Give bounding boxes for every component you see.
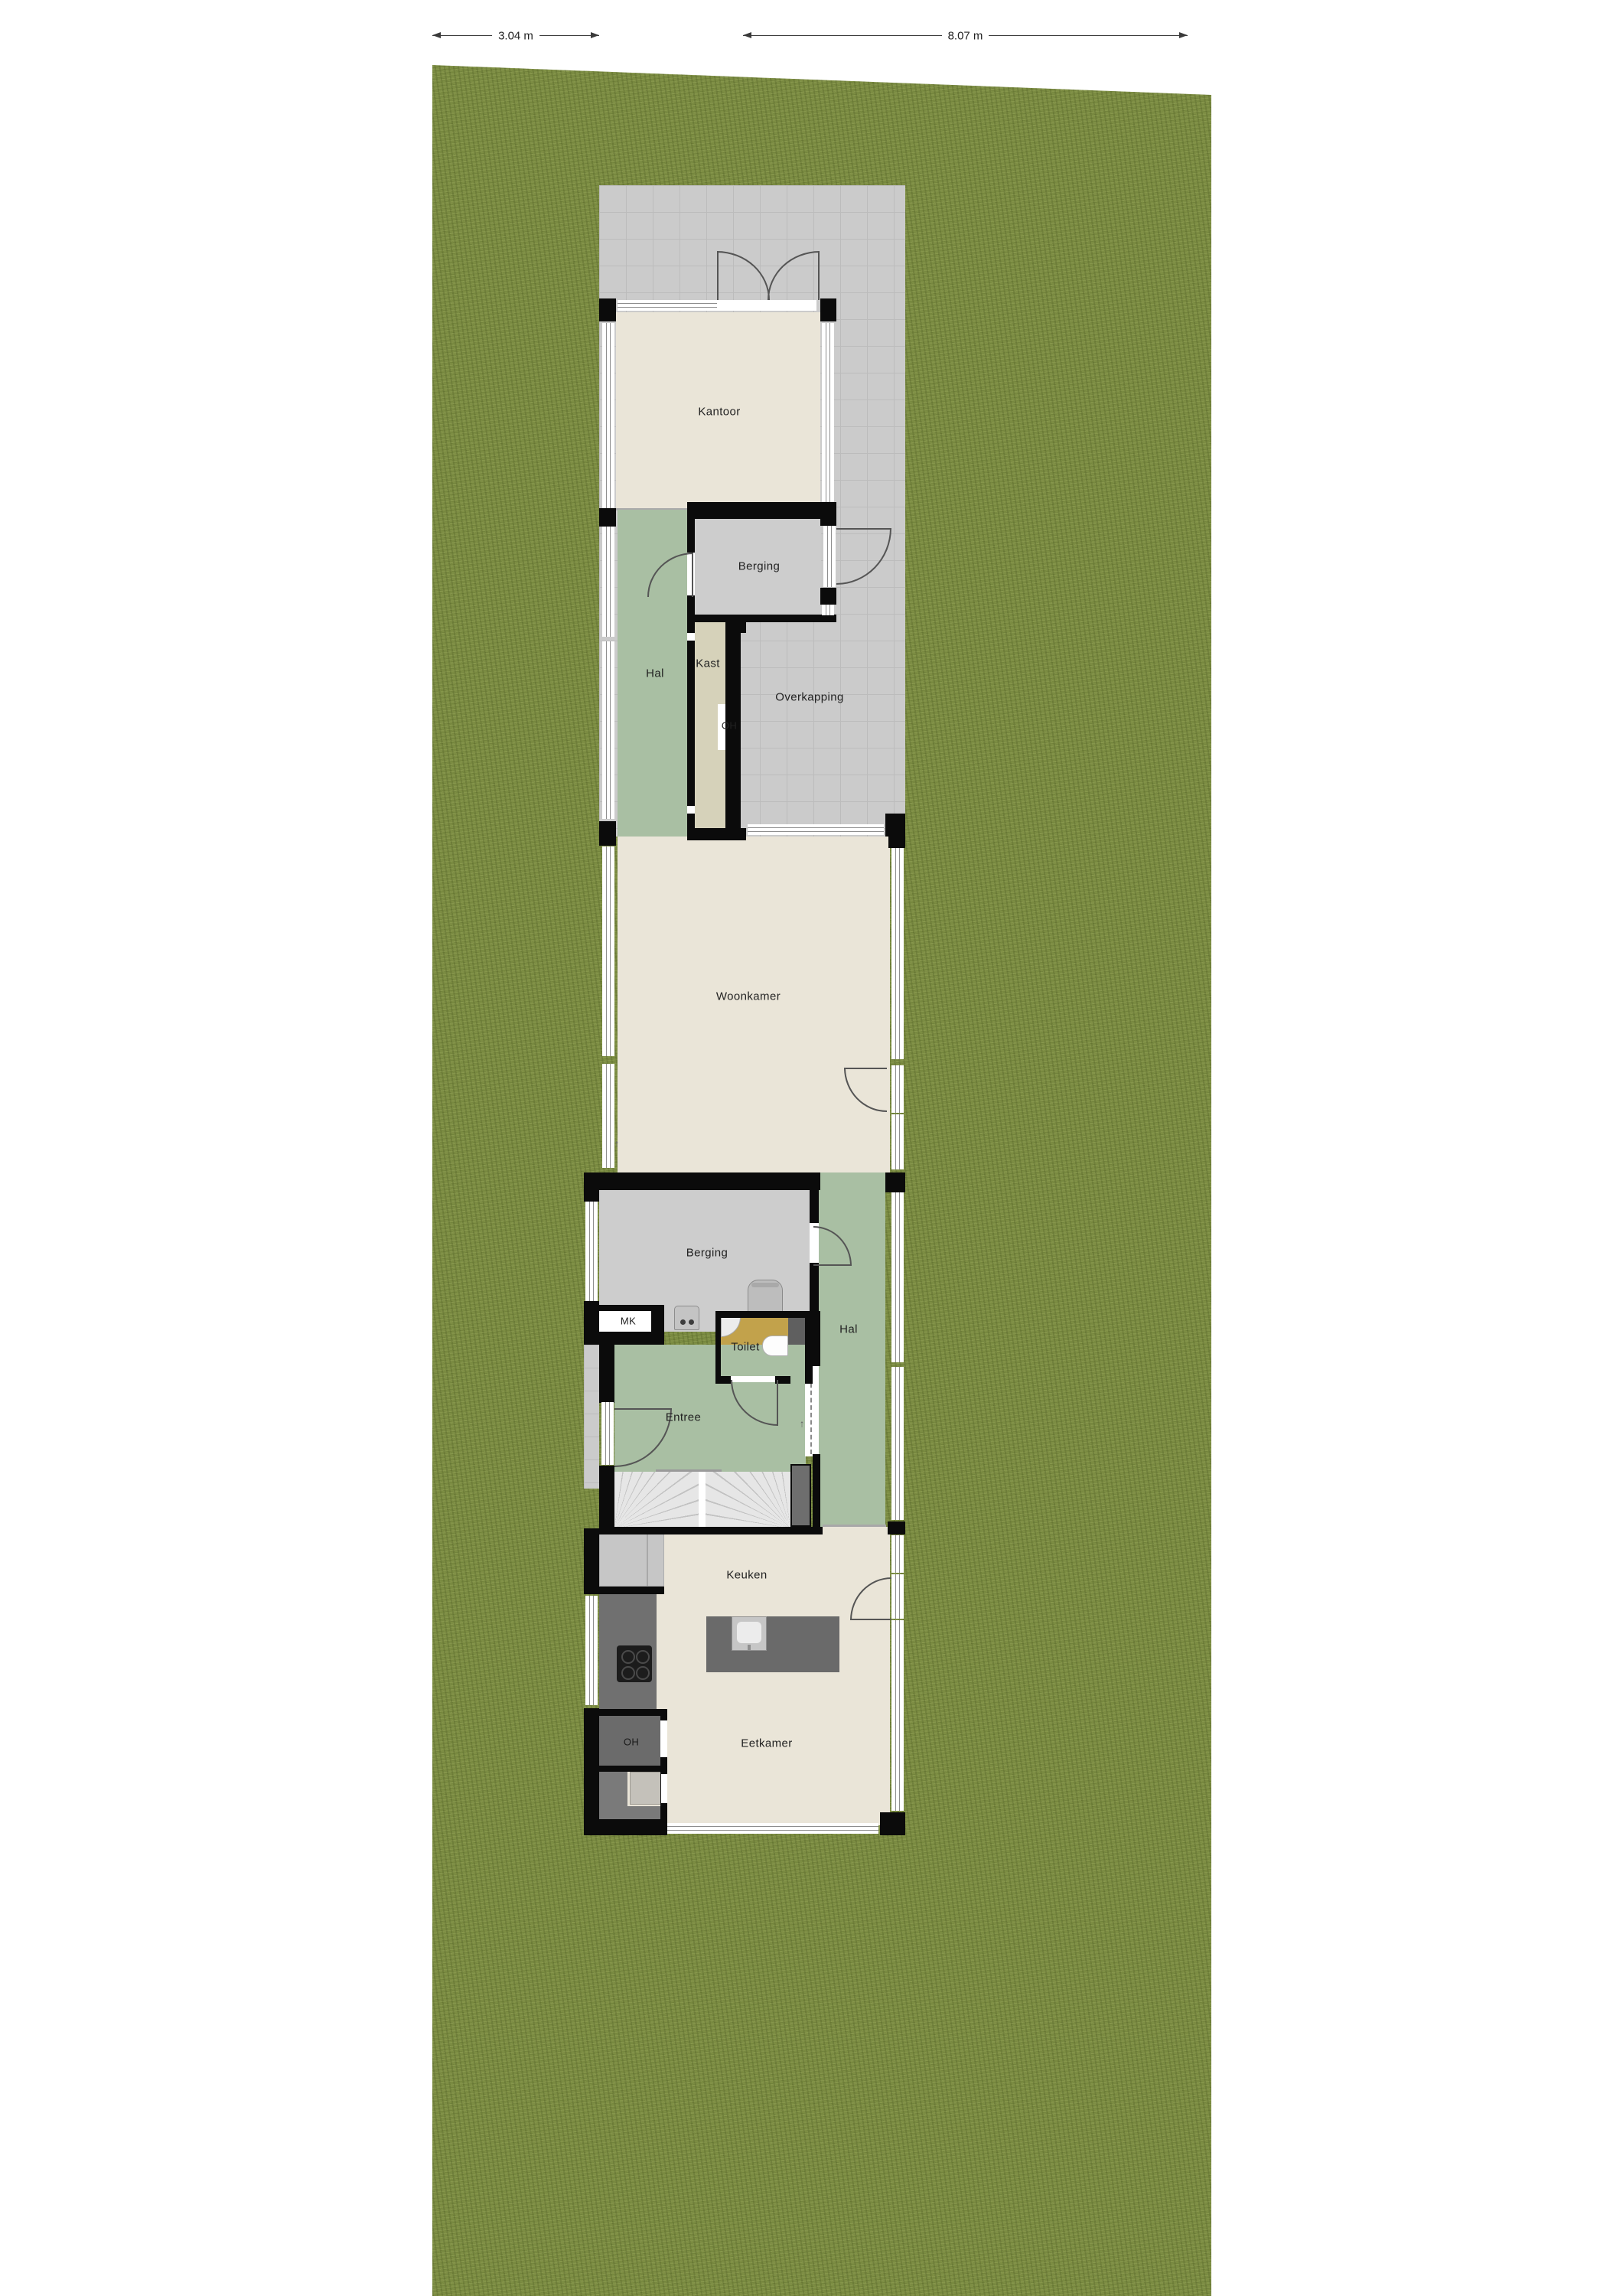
wall [687, 828, 746, 840]
toilet-fixture [762, 1336, 788, 1356]
room-label-overkapping: Overkapping [775, 691, 843, 704]
boiler-top [751, 1283, 779, 1287]
wall [888, 1521, 905, 1534]
wall [813, 1454, 820, 1527]
wall-marker-arrow-icon: ↑ [614, 1138, 620, 1150]
washer [674, 1306, 699, 1330]
window [891, 1367, 904, 1520]
kitchen-island [706, 1616, 839, 1672]
burner-icon [636, 1650, 650, 1664]
wall [715, 1316, 721, 1376]
room-label-kantoor: Kantoor [698, 406, 740, 419]
stairs-up-arrow-icon: ↑ [800, 1418, 805, 1430]
arrow-right-icon [1179, 32, 1188, 38]
entry-step [630, 1772, 664, 1805]
french-door-opening [717, 300, 816, 311]
window [585, 1202, 598, 1301]
wall [820, 519, 836, 526]
wall [584, 1708, 599, 1835]
wall [584, 1190, 599, 1202]
window [602, 846, 614, 1056]
wall [687, 622, 695, 832]
window [602, 527, 614, 637]
front-door-opening [601, 1402, 614, 1465]
wall [687, 615, 836, 622]
room-label-oh2: OH [624, 1737, 639, 1748]
wall [599, 1527, 823, 1534]
wall [885, 1172, 905, 1192]
wall [584, 1819, 667, 1835]
window [585, 1596, 598, 1705]
wall [715, 1376, 731, 1384]
wall [651, 1305, 664, 1332]
wall [599, 1709, 667, 1716]
window [891, 1620, 904, 1811]
window [667, 1823, 878, 1834]
window [891, 1535, 904, 1573]
dimension-label: 8.07 m [942, 30, 989, 43]
oh2-lower-arm [627, 1806, 660, 1819]
faucet-icon [748, 1645, 751, 1651]
window [618, 300, 717, 311]
wall [810, 1263, 819, 1311]
staircase-handrail [656, 1469, 722, 1472]
room-hal2-floor [819, 1172, 885, 1527]
island-sink [732, 1616, 767, 1651]
wall [599, 1587, 664, 1594]
window [822, 605, 834, 615]
wall [813, 1311, 820, 1366]
wall [820, 588, 836, 605]
kitchen-cabinet-divider [647, 1533, 648, 1587]
wall [584, 1528, 599, 1594]
washer-knob-icon [680, 1319, 686, 1325]
window [891, 848, 904, 1059]
dimension-label: 3.04 m [492, 30, 539, 43]
dimension-8-07m: 8.07 m [743, 30, 1188, 42]
door-opening [660, 1720, 667, 1757]
window [891, 1192, 904, 1362]
door-opening [823, 526, 836, 587]
wall [599, 1345, 614, 1403]
wall [820, 298, 836, 321]
wall [599, 1305, 651, 1311]
cooktop [617, 1645, 652, 1682]
staircase-well-gap [699, 1472, 706, 1528]
dimension-3-04m: 3.04 m [432, 30, 599, 42]
room-label-toilet: Toilet [731, 1341, 759, 1354]
room-label-berging2: Berging [686, 1247, 728, 1260]
window [822, 323, 834, 502]
window [602, 1064, 614, 1168]
staircase-left-flight [614, 1472, 699, 1528]
room-label-hal2: Hal [839, 1323, 858, 1336]
staircase-newel-block [790, 1464, 811, 1527]
wall [687, 502, 836, 519]
window [891, 1114, 904, 1169]
door-opening [687, 633, 695, 641]
door-opening [661, 1774, 667, 1803]
kitchen-cabinet [599, 1533, 664, 1587]
wall [584, 1172, 820, 1190]
wall [880, 1812, 905, 1835]
wall [584, 1332, 664, 1345]
entrance-walkway [584, 1345, 599, 1489]
room-label-berging1: Berging [738, 560, 781, 573]
wall [805, 1311, 813, 1384]
wall [885, 814, 905, 837]
room-label-mk: MK [621, 1316, 636, 1327]
hal-keuken-threshold [823, 1525, 886, 1527]
door-opening [891, 1574, 904, 1619]
arrow-right-icon [591, 32, 599, 38]
wall [599, 298, 616, 321]
boiler [748, 1280, 783, 1314]
wall [888, 834, 905, 848]
wall [599, 1466, 614, 1528]
washer-knob-icon [689, 1319, 694, 1325]
room-label-oh1: OH [722, 720, 737, 732]
room-label-keuken: Keuken [726, 1569, 767, 1582]
room-label-entree: Entree [666, 1411, 702, 1424]
wall [599, 508, 616, 527]
staircase-right-flight [706, 1472, 790, 1528]
room-label-eetkamer: Eetkamer [741, 1737, 792, 1750]
burner-icon [621, 1666, 635, 1680]
room-label-woonkamer: Woonkamer [716, 990, 781, 1003]
sink-basin [737, 1622, 761, 1643]
room-label-kast: Kast [696, 657, 720, 670]
room-woonkamer-floor [618, 837, 890, 1172]
window [602, 323, 614, 508]
window [748, 824, 884, 835]
oh2-lower-floor [599, 1772, 627, 1819]
wall [599, 1766, 660, 1772]
door-opening [687, 806, 695, 814]
door-opening [891, 1065, 904, 1113]
wall [599, 821, 616, 846]
wall [810, 1190, 819, 1223]
floorplan-canvas: Kantoor Berging Hal Kast OH Overkapping … [0, 0, 1623, 2296]
arrow-left-icon [432, 32, 441, 38]
arrow-left-icon [743, 32, 751, 38]
burner-icon [636, 1666, 650, 1680]
room-label-hal1: Hal [646, 667, 664, 680]
window [602, 641, 614, 819]
wall [715, 1311, 813, 1318]
burner-icon [621, 1650, 635, 1664]
